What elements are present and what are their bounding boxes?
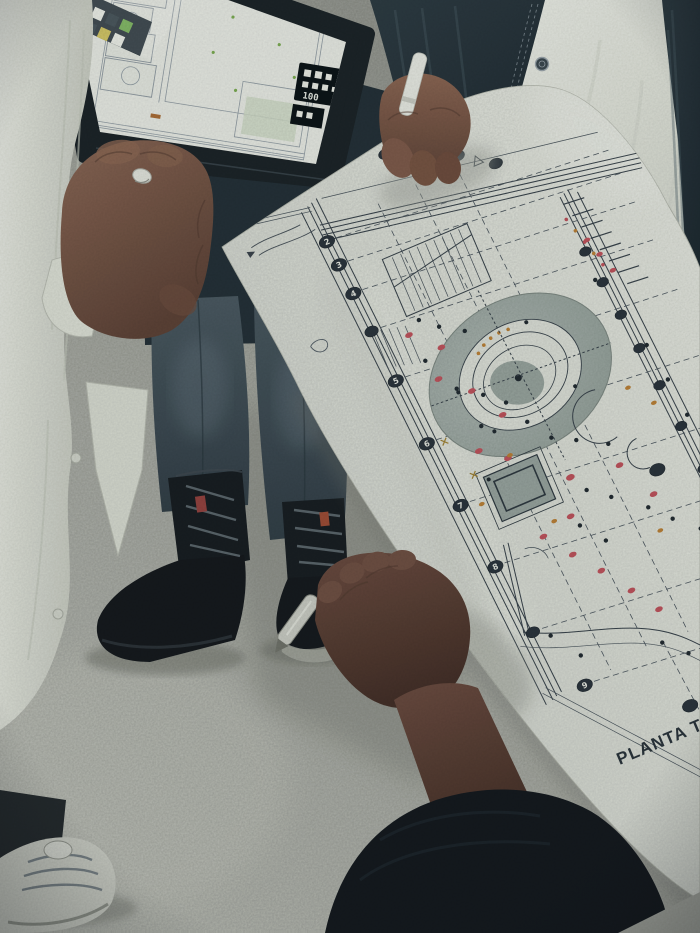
construction-plan-review-photo: 100 <box>0 0 700 933</box>
photo-svg: 100 <box>0 0 700 933</box>
vignette <box>0 0 700 933</box>
